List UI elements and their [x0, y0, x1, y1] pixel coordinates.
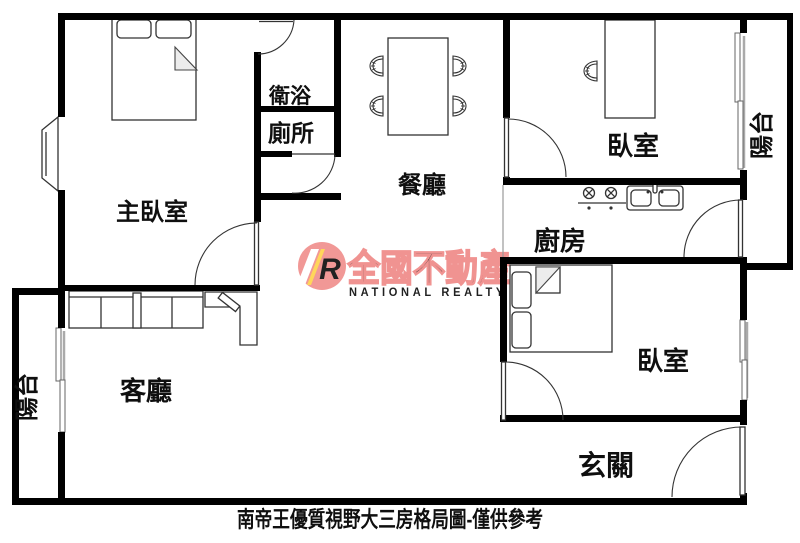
label-balcony-right: 陽台 [748, 111, 776, 159]
dining-chair [370, 96, 383, 116]
dining-table [388, 38, 448, 135]
tv-cabinet [205, 292, 257, 345]
watermark: R 全國不動產 NATIONAL REALTY [297, 242, 511, 299]
label-bedroom-upper: 臥室 [607, 131, 659, 161]
logo-letter: R [319, 253, 341, 286]
master-bedroom-door [195, 222, 259, 285]
bedroom-lower-window [740, 320, 747, 400]
watermark-brand-en: NATIONAL REALTY [349, 285, 507, 299]
watermark-brand-zh: 全國不動產 [347, 247, 511, 289]
label-balcony-left: 陽台 [13, 373, 41, 421]
toilet-door [292, 154, 335, 193]
master-bed [112, 15, 197, 120]
floorplan-svg: R 全國不動產 NATIONAL REALTY [0, 0, 800, 543]
floorplan-image: R 全國不動產 NATIONAL REALTY [0, 0, 800, 543]
label-bathroom: 衛浴 [268, 84, 312, 108]
dining-chair [453, 96, 466, 116]
label-living-room: 客廳 [120, 376, 172, 406]
kitchen-balcony-door [684, 200, 743, 257]
bedroom-upper-door [505, 118, 567, 177]
label-toilet: 廁所 [268, 120, 314, 146]
dining-chair [453, 56, 466, 76]
bathroom-door [258, 20, 294, 54]
entry-door [672, 427, 745, 497]
label-master-bedroom: 主臥室 [116, 198, 188, 226]
sink [627, 181, 683, 210]
bay-window [42, 117, 58, 191]
balcony-right-sliding-window [735, 33, 744, 169]
dining-chair [370, 56, 383, 76]
bed [510, 265, 612, 352]
label-dining-room: 餐廳 [398, 171, 446, 199]
label-bedroom-lower: 臥室 [637, 346, 689, 376]
sofa [69, 291, 203, 328]
caption: 南帝王優質視野大三房格局圖-僅供參考 [237, 507, 543, 532]
stove [578, 188, 626, 210]
desk [605, 20, 655, 118]
label-entry: 玄關 [578, 449, 634, 481]
balcony-left-sliding-door [56, 328, 65, 432]
label-kitchen: 廚房 [534, 226, 586, 256]
bedroom-lower-door [502, 362, 564, 420]
desk-chair [584, 61, 597, 81]
